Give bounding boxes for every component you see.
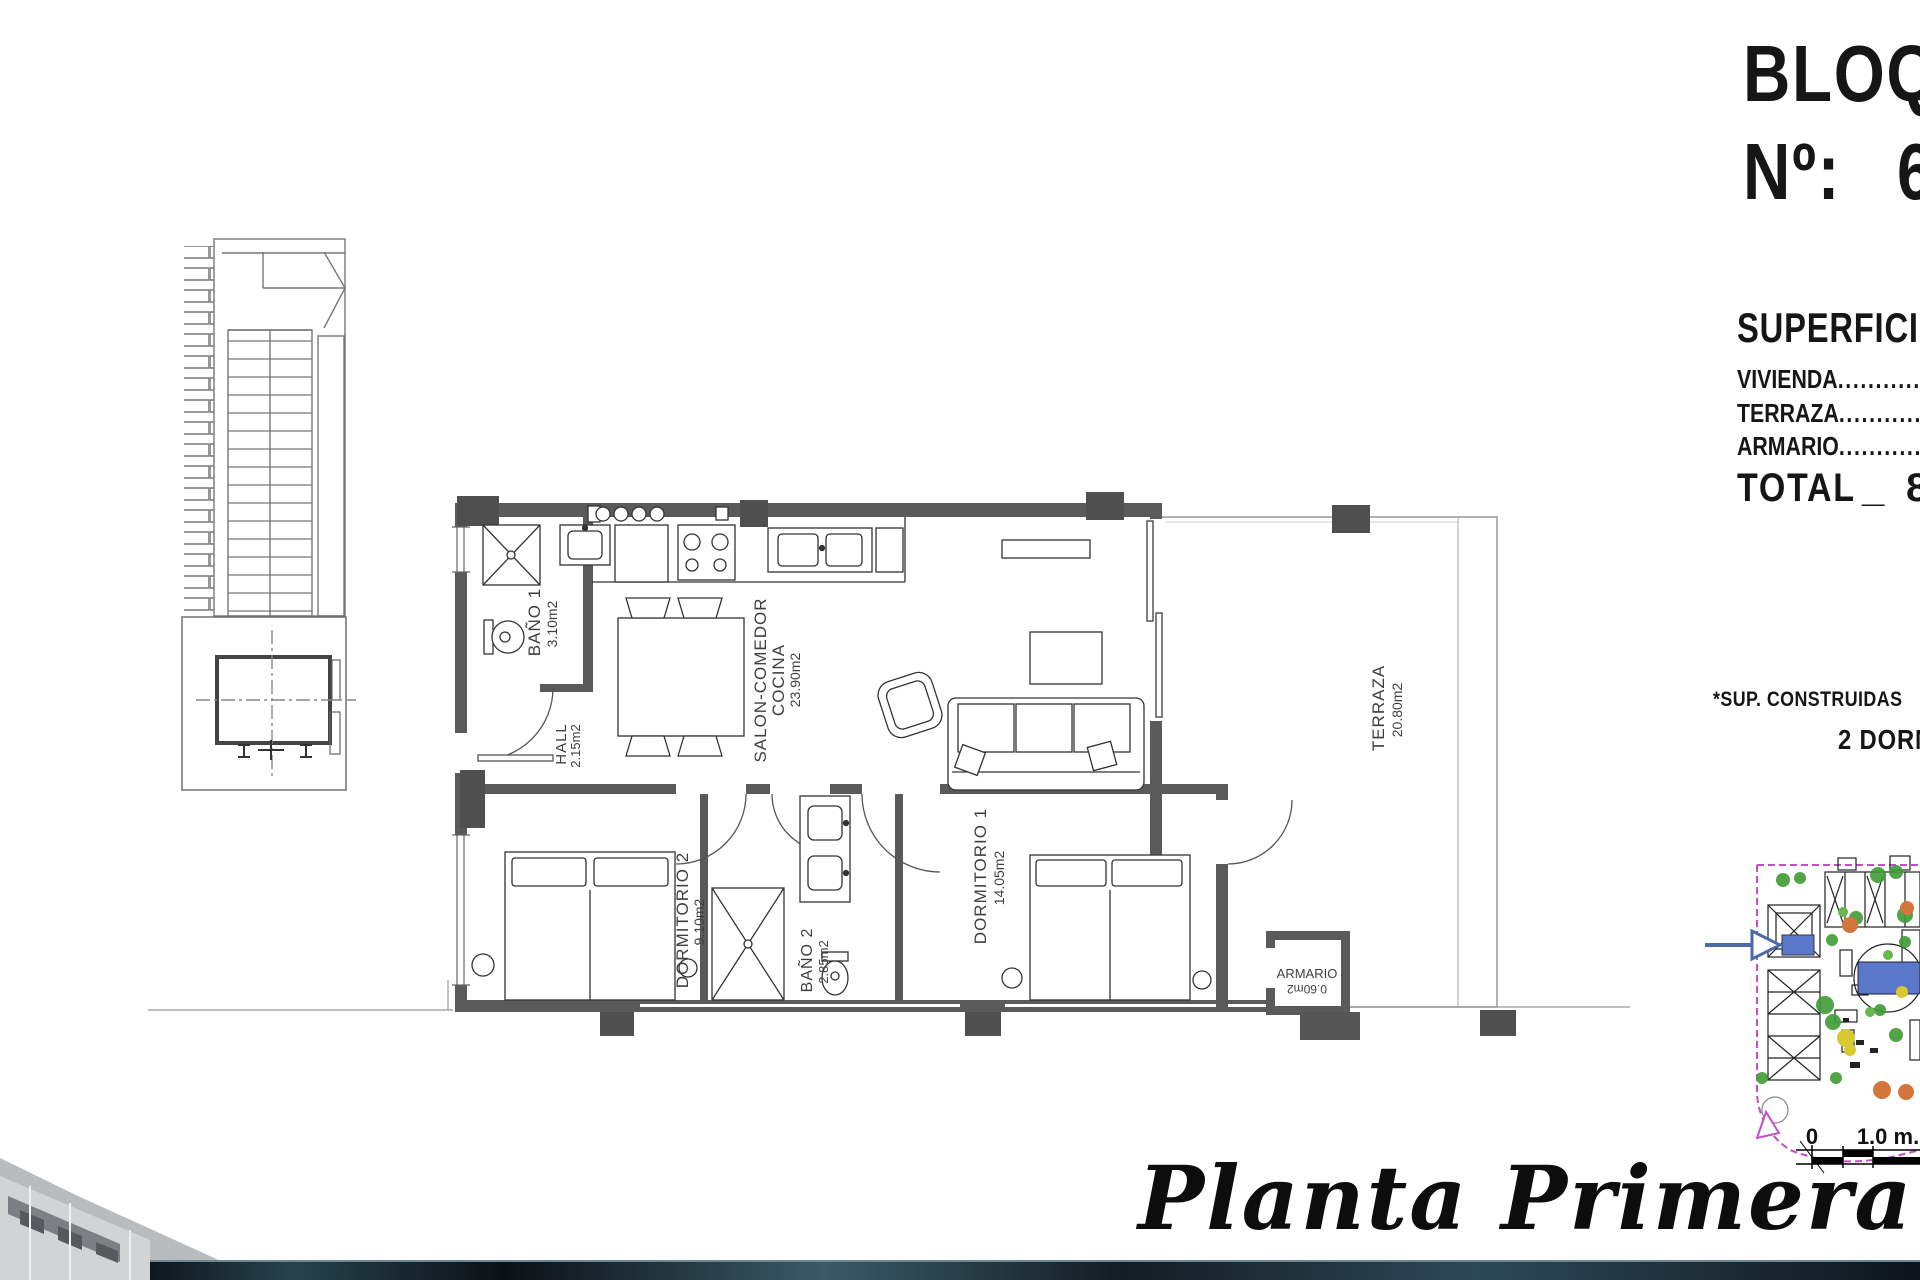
dining-table bbox=[618, 598, 744, 756]
label-bano1-area: 3.10m2 bbox=[544, 600, 560, 647]
armchair bbox=[874, 669, 945, 741]
shower2 bbox=[712, 888, 784, 1000]
photo-strip bbox=[150, 1260, 1920, 1280]
label-terraza-area: 20.80m2 bbox=[1389, 683, 1405, 738]
label-bano1-name: BAÑO 1 bbox=[525, 588, 544, 656]
label-dormitorio1-area: 14.05m2 bbox=[991, 851, 1007, 906]
label-armario-name: ARMARIO bbox=[1277, 966, 1338, 981]
row-leader: ........................................ bbox=[1839, 431, 1920, 461]
bedroom2-furniture bbox=[472, 852, 697, 1000]
sliding-door-panel bbox=[1156, 613, 1162, 717]
kitchen-sink bbox=[768, 528, 872, 572]
superficies-title: SUPERFICIES bbox=[1737, 304, 1920, 352]
shower1 bbox=[483, 525, 540, 585]
row-leader: ........................................ bbox=[1839, 398, 1920, 428]
stairwell bbox=[184, 239, 345, 616]
site-plan bbox=[1705, 856, 1920, 1161]
label-dormitorio1-name: DORMITORIO 1 bbox=[971, 808, 990, 944]
elevator bbox=[182, 617, 356, 790]
fridge bbox=[615, 525, 668, 582]
total-label: TOTAL bbox=[1737, 466, 1856, 511]
label-dormitorio2-name: DORMITORIO 2 bbox=[673, 852, 692, 988]
sink1 bbox=[560, 525, 610, 565]
site-autumn-trees bbox=[1842, 901, 1914, 1100]
label-armario-area: 0.60m2 bbox=[1287, 982, 1327, 996]
label-salon-name2: COCINA bbox=[769, 644, 788, 716]
coffee-table bbox=[1030, 632, 1102, 684]
bedroom1-furniture bbox=[1002, 855, 1211, 1000]
label-salon-area: 23.90m2 bbox=[787, 653, 803, 708]
nightstand bbox=[472, 954, 494, 976]
blueprint-page: BAÑO 1 3.10m2 HALL 2.15m2 SALON-COMEDOR … bbox=[0, 0, 1920, 1280]
superficie-row-armario: ARMARIO.................................… bbox=[1737, 431, 1920, 462]
row-label: ARMARIO bbox=[1737, 431, 1839, 461]
total-separator: _ bbox=[1862, 466, 1884, 511]
superficie-row-vivienda: VIVIENDA................................… bbox=[1737, 364, 1920, 395]
sliding-door-panel bbox=[1147, 521, 1153, 621]
plan-title: Planta Primera bbox=[1138, 1146, 1913, 1250]
highlighted-unit bbox=[1782, 935, 1814, 955]
superficie-row-terraza: TERRAZA.................................… bbox=[1737, 398, 1920, 429]
note-built-surfaces: *SUP. CONSTRUIDAS bbox=[1713, 688, 1902, 712]
label-dormitorio2-area: 9.10m2 bbox=[691, 898, 707, 945]
note-bedrooms: 2 DORMITORIOS bbox=[1838, 724, 1920, 756]
vanity2 bbox=[800, 796, 850, 902]
pool bbox=[1858, 962, 1920, 994]
block-number-value: 6 bbox=[1897, 126, 1920, 218]
console-table bbox=[1002, 540, 1090, 558]
stove bbox=[678, 525, 735, 580]
label-salon-name1: SALON-COMEDOR bbox=[751, 597, 770, 762]
label-terraza-name: TERRAZA bbox=[1369, 665, 1388, 751]
total-value: 8 bbox=[1906, 466, 1920, 511]
row-leader: ........................................ bbox=[1838, 364, 1920, 394]
nightstand bbox=[1193, 971, 1211, 989]
floor-plan-drawing: BAÑO 1 3.10m2 HALL 2.15m2 SALON-COMEDOR … bbox=[0, 0, 1920, 1280]
stair-direction-arrow bbox=[324, 252, 345, 328]
label-bano2-area: 2.85m2 bbox=[816, 940, 831, 983]
stair-hatch bbox=[184, 246, 214, 616]
block-number-label: Nº: bbox=[1743, 126, 1841, 218]
row-label: TERRAZA bbox=[1737, 398, 1839, 428]
row-label: VIVIENDA bbox=[1737, 364, 1838, 394]
sofa bbox=[948, 698, 1144, 790]
unit-pointer-arrow bbox=[1705, 931, 1780, 959]
nightstand bbox=[1002, 968, 1022, 988]
block-title: BLOQUE bbox=[1743, 28, 1920, 120]
label-hall-area: 2.15m2 bbox=[568, 724, 583, 767]
entrance-opening bbox=[452, 733, 470, 773]
label-bano2-name: BAÑO 2 bbox=[796, 928, 816, 993]
toilet1 bbox=[484, 620, 524, 654]
